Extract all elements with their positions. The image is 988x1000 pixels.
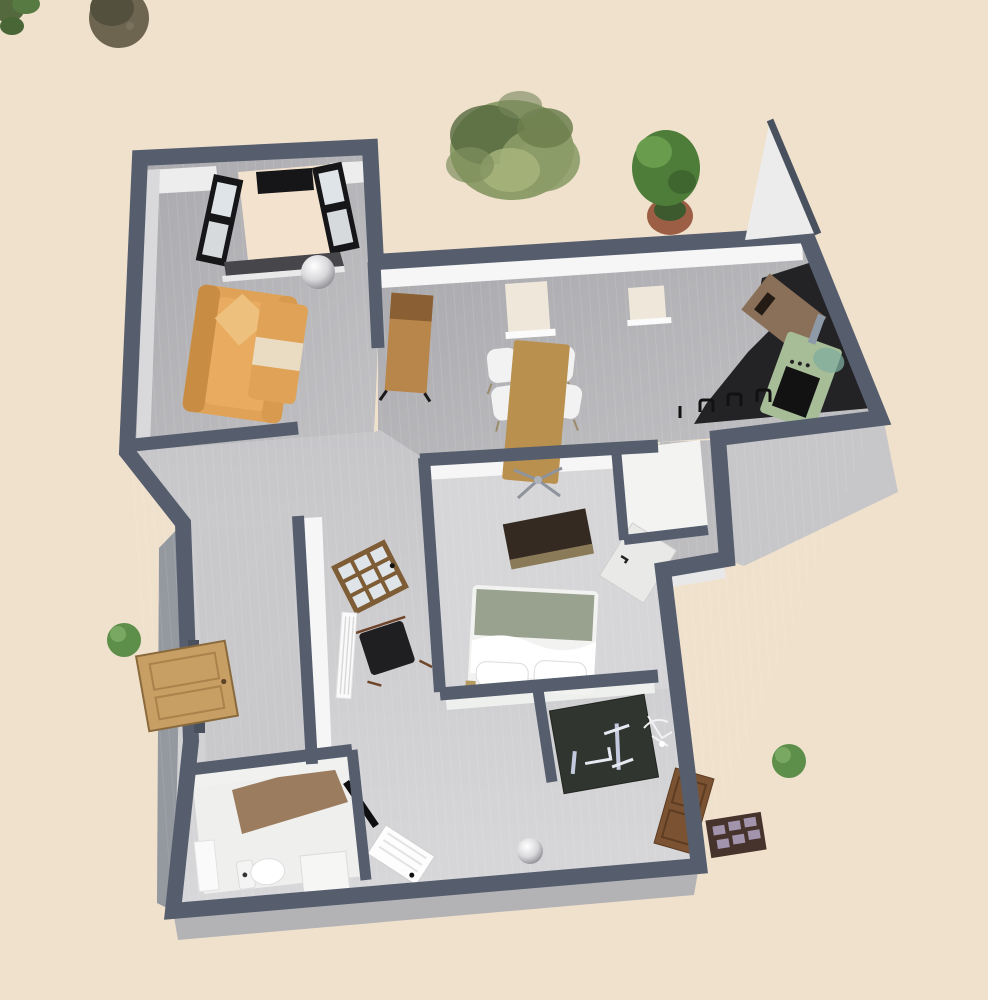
balcony-alcove [196,162,360,282]
scene-svg [0,0,988,1000]
gym-bench[interactable] [549,694,658,793]
tree-trunk[interactable] [89,0,149,48]
front-door-panel [136,641,238,731]
exercise-machine-wheel [659,741,665,747]
living-dome-lamp[interactable] [301,255,335,289]
wall-radiator-1-body [505,281,550,334]
bed-blanket [474,589,594,641]
wall-radiator-2-body [628,285,666,321]
balcony-black-panel [256,168,314,194]
plant-foliage-light [636,136,672,168]
gym-bench-mat [549,694,658,793]
small-bush-right[interactable] [772,744,806,778]
front-door-open[interactable] [136,641,238,731]
tree-trunk-moss [126,22,134,30]
potted-plant[interactable] [632,130,700,235]
tall-corner-wall [745,120,818,240]
pedestal-hub [534,476,542,484]
front-entrance [136,640,238,733]
hallway-dome-lamp[interactable] [517,838,543,864]
tall-cabinet-top [390,293,434,322]
corner-leaf-cluster [0,0,40,35]
floor-plan-canvas [0,0,988,1000]
large-bush[interactable] [446,91,580,200]
living-east-wall-lower [374,262,378,348]
plant-foliage-dark [668,170,696,194]
small-bush-left[interactable] [107,623,141,657]
